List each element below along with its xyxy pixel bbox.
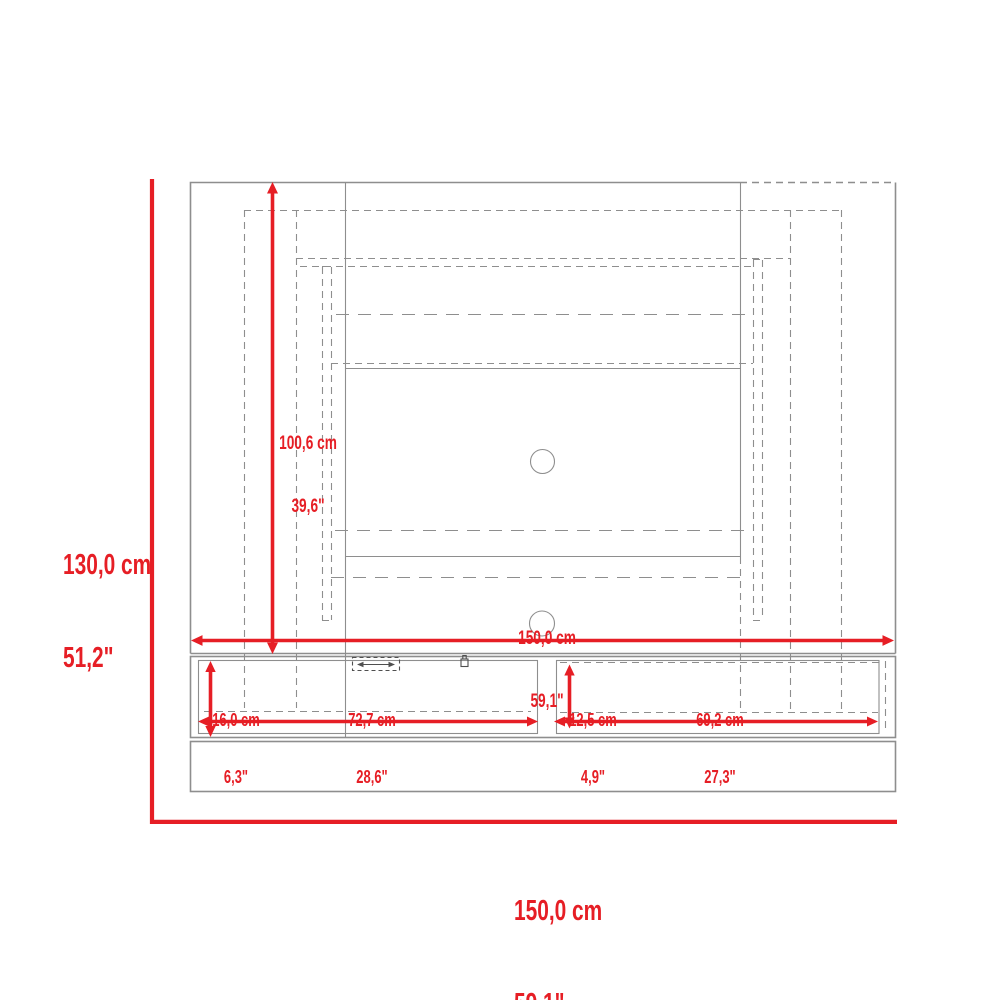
dim-panel-height-cm: 100,6 cm [250, 433, 365, 454]
dim-right-drawer-width-label: 69,2 cm 27,3" [670, 673, 771, 825]
dim-right-drawer-height-inches: 4,9" [543, 768, 644, 787]
dim-right-drawer-width-cm: 69,2 cm [670, 711, 771, 730]
dim-right-drawer-height-cm: 12,5 cm [543, 711, 644, 730]
handle-detail [353, 658, 400, 671]
dim-overall-width-cm: 150,0 cm [514, 896, 602, 927]
dimension-diagram: 130,0 cm 51,2" 150,0 cm 59,1" 100,6 cm 3… [0, 0, 1000, 1000]
dim-overall-height-inches: 51,2" [63, 643, 151, 674]
dim-overall-width-inches: 59,1" [514, 989, 602, 1000]
dim-panel-height-label: 100,6 cm 39,6" [250, 391, 365, 559]
dim-overall-width-label: 150,0 cm 59,1" [514, 834, 602, 1000]
dim-left-drawer-width-cm: 72,7 cm [322, 711, 423, 730]
dim-overall-height-cm: 130,0 cm [63, 550, 151, 581]
dim-left-drawer-height-cm: 16,0 cm [186, 711, 287, 730]
dim-left-drawer-width-label: 72,7 cm 28,6" [322, 673, 423, 825]
cable-hole-upper [531, 450, 555, 474]
dim-right-drawer-width-inches: 27,3" [670, 768, 771, 787]
dim-overall-height-label: 130,0 cm 51,2" [63, 488, 151, 736]
dim-right-drawer-height-label: 12,5 cm 4,9" [543, 673, 644, 825]
right-support-strip [753, 260, 763, 621]
dim-mid-width-cm: 150,0 cm [489, 628, 604, 649]
dim-left-drawer-height-label: 16,0 cm 6,3" [186, 673, 287, 825]
dim-panel-height-inches: 39,6" [250, 496, 365, 517]
dim-left-drawer-width-inches: 28,6" [322, 768, 423, 787]
dim-left-drawer-height-inches: 6,3" [186, 768, 287, 787]
